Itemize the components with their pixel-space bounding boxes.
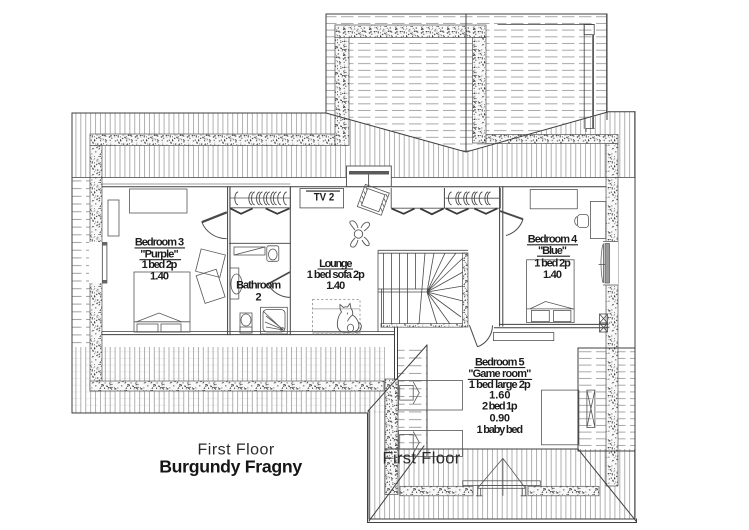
svg-text:0.90: 0.90 [490, 412, 511, 424]
svg-text:1 bed 2p: 1 bed 2p [534, 258, 571, 270]
svg-text:1.60: 1.60 [489, 389, 510, 401]
svg-text:1.40: 1.40 [326, 280, 345, 292]
svg-text:First Floor: First Floor [383, 450, 461, 468]
svg-text:1.40: 1.40 [543, 269, 562, 281]
svg-text:Bedroom 3: Bedroom 3 [135, 236, 184, 248]
svg-text:2 bed 1p: 2 bed 1p [482, 401, 518, 413]
svg-text:Burgundy Fragny: Burgundy Fragny [159, 457, 302, 477]
svg-text:Bedroom 4: Bedroom 4 [528, 234, 578, 246]
svg-text:Bedroom 5: Bedroom 5 [475, 356, 525, 368]
svg-text:1.40: 1.40 [150, 271, 169, 283]
svg-text:Bathroom: Bathroom [236, 280, 281, 292]
svg-text:1 baby bed: 1 baby bed [477, 424, 524, 436]
svg-text:"Blue": "Blue" [538, 245, 567, 257]
svg-text:1 bed 2p: 1 bed 2p [142, 259, 178, 271]
svg-text:2: 2 [256, 291, 262, 303]
svg-text:TV 2: TV 2 [314, 192, 335, 204]
